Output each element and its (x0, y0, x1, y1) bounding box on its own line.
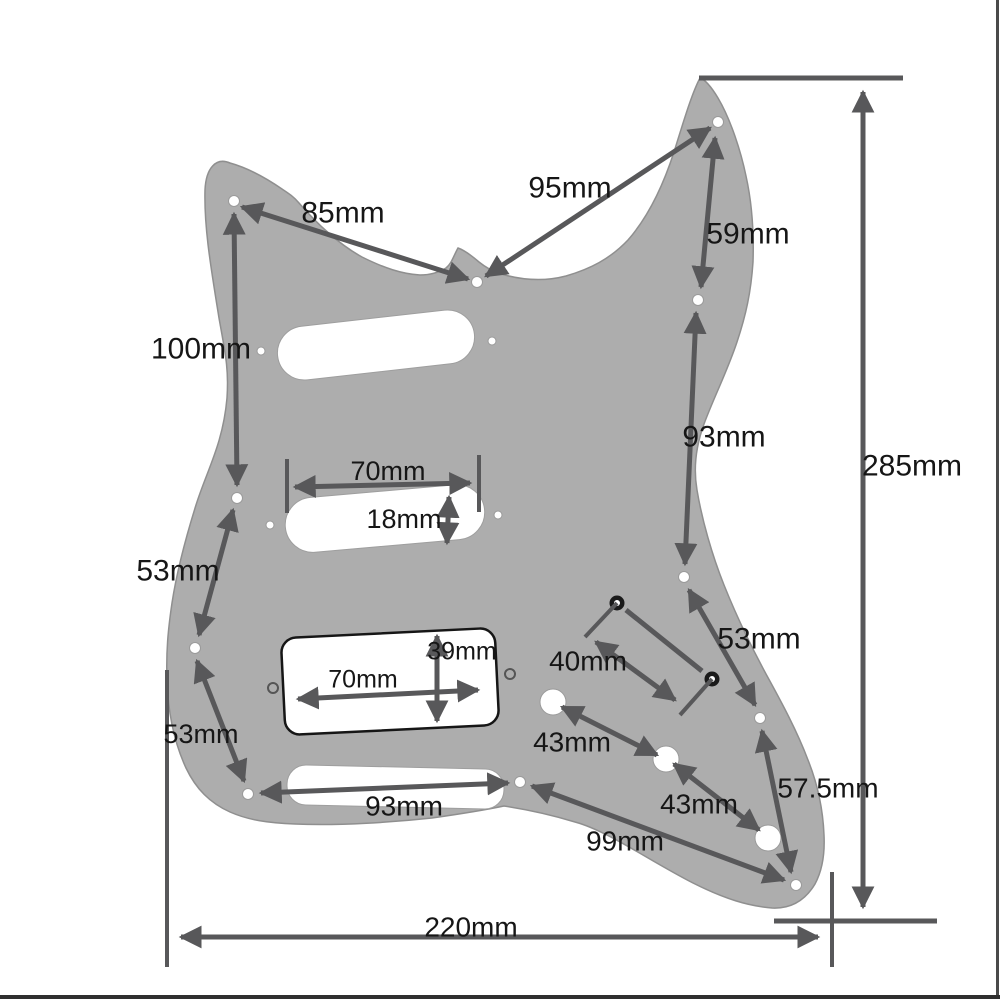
dim-label-99mm: 99mm (586, 828, 664, 856)
dim-label-85mm: 85mm (301, 199, 384, 229)
dim-label-100mm: 100mm (151, 335, 251, 365)
neck-pickup-screw-left (257, 347, 265, 355)
screw-hole-left-lower (190, 643, 201, 654)
dim-label-39mm: 39mm (427, 639, 496, 664)
neck-pickup-screw-right (488, 337, 496, 345)
dim-label-70mm-humbucker: 70mm (328, 667, 397, 692)
dim-label-57-5mm: 57.5mm (777, 775, 878, 803)
middle-pickup-screw-left (266, 521, 274, 529)
diagram-canvas (0, 0, 1000, 999)
middle-pickup-screw-right (494, 511, 502, 519)
dim-label-93mm-bottom: 93mm (365, 793, 443, 821)
screw-hole-right-lower (755, 713, 766, 724)
dim-label-95mm: 95mm (528, 174, 611, 204)
dim-label-59mm: 59mm (706, 220, 789, 250)
dim-label-285mm: 285mm (862, 452, 962, 482)
pot-hole-tone1 (653, 746, 679, 772)
dim-label-53mm-left-upper: 53mm (136, 557, 219, 587)
screw-hole-bridge-right (515, 777, 526, 788)
dim-label-93mm-right: 93mm (682, 423, 765, 453)
dim-label-43mm-lower: 43mm (660, 791, 738, 819)
pot-hole-volume (540, 689, 566, 715)
dim-label-53mm-right: 53mm (717, 625, 800, 655)
screw-hole-bottom-left (243, 789, 254, 800)
screw-hole-left-middle (232, 493, 243, 504)
dim-label-18mm: 18mm (366, 506, 441, 533)
dim-label-53mm-left-lower: 53mm (163, 721, 238, 748)
screw-hole-right-upper (693, 295, 704, 306)
screw-hole-top-middle (472, 277, 483, 288)
dim-label-43mm-upper: 43mm (533, 729, 611, 757)
pickguard-dimension-diagram: 85mm95mm59mm93mm285mm100mm70mm18mm53mm53… (0, 0, 1000, 999)
screw-hole-bottom-right (791, 880, 802, 891)
screw-hole-top-left (229, 196, 240, 207)
screw-hole-right-middle (679, 572, 690, 583)
dim-label-220mm: 220mm (424, 914, 517, 942)
screw-hole-top-right (713, 117, 724, 128)
arrow-18mm (447, 497, 449, 543)
dim-label-70mm-middle: 70mm (350, 458, 425, 485)
dim-label-40mm: 40mm (549, 648, 627, 676)
